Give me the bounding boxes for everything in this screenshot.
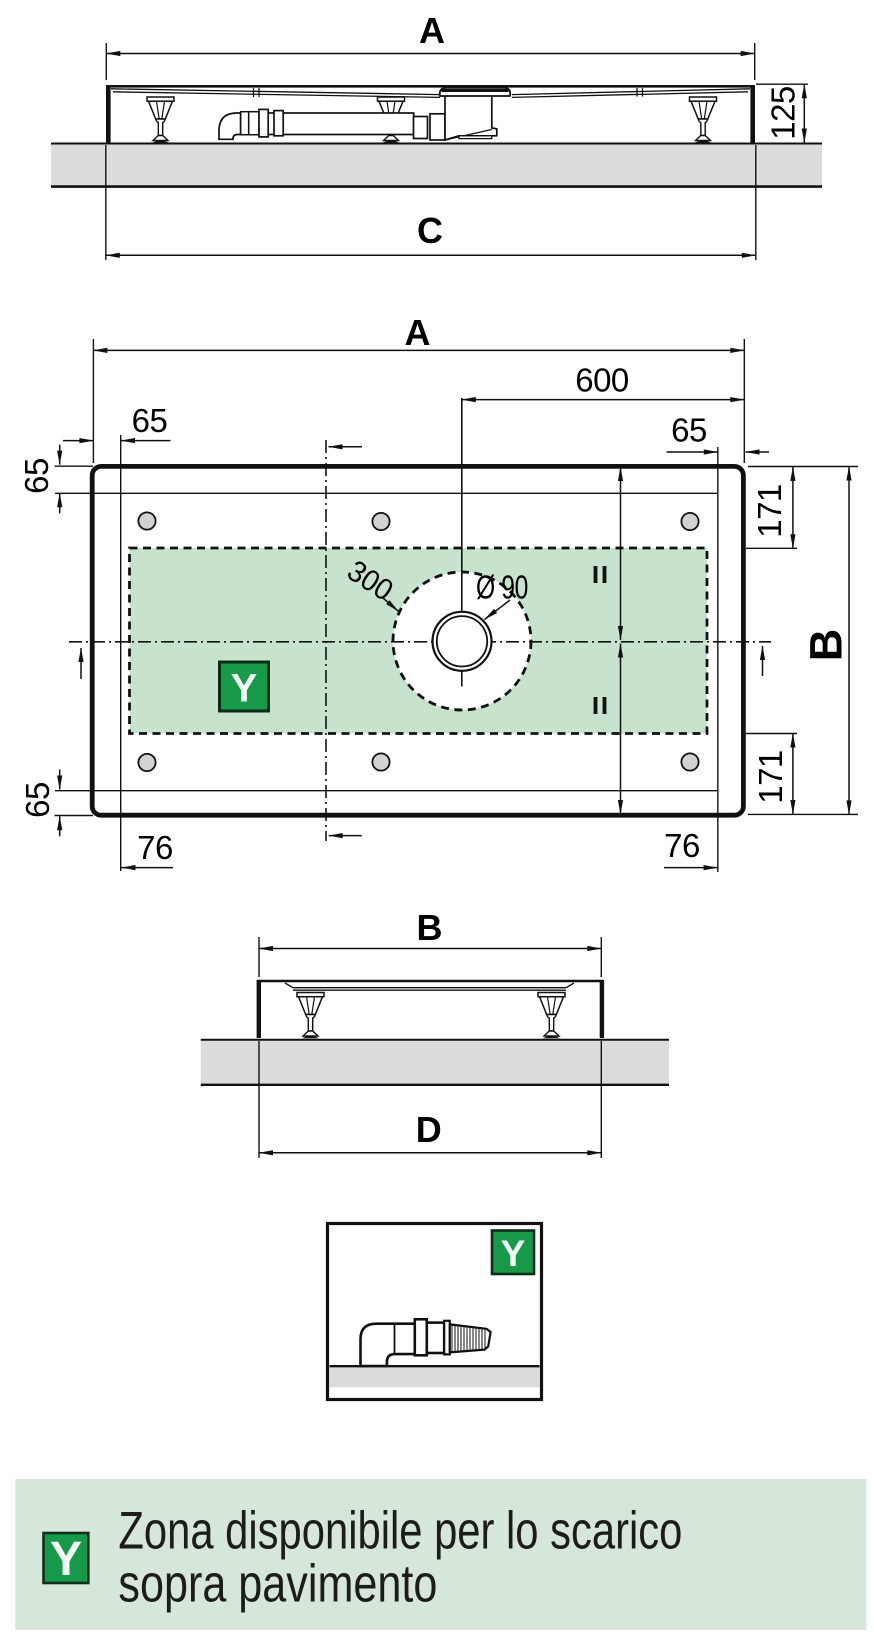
svg-text:171: 171: [752, 750, 789, 804]
svg-text:C: C: [417, 210, 443, 251]
svg-text:Y: Y: [50, 1533, 82, 1586]
svg-text:Y: Y: [501, 1233, 526, 1274]
svg-text:76: 76: [137, 829, 173, 866]
svg-text:65: 65: [19, 782, 56, 818]
svg-text:A: A: [419, 10, 445, 51]
svg-text:D: D: [416, 1109, 442, 1150]
svg-text:600: 600: [575, 362, 629, 399]
svg-text:A: A: [405, 312, 431, 353]
svg-text:Ø 90: Ø 90: [476, 569, 528, 606]
svg-text:171: 171: [751, 484, 788, 538]
svg-text:125: 125: [765, 86, 802, 140]
svg-text:Y: Y: [231, 667, 258, 711]
svg-text:65: 65: [18, 458, 55, 494]
svg-text:Zona disponibile per lo scaric: Zona disponibile per lo scarico: [118, 1501, 682, 1560]
svg-text:B: B: [801, 629, 852, 662]
svg-text:B: B: [417, 907, 443, 948]
svg-text:76: 76: [664, 827, 700, 864]
svg-text:65: 65: [132, 402, 168, 439]
svg-text:65: 65: [671, 412, 707, 449]
svg-text:sopra pavimento: sopra pavimento: [118, 1554, 437, 1613]
